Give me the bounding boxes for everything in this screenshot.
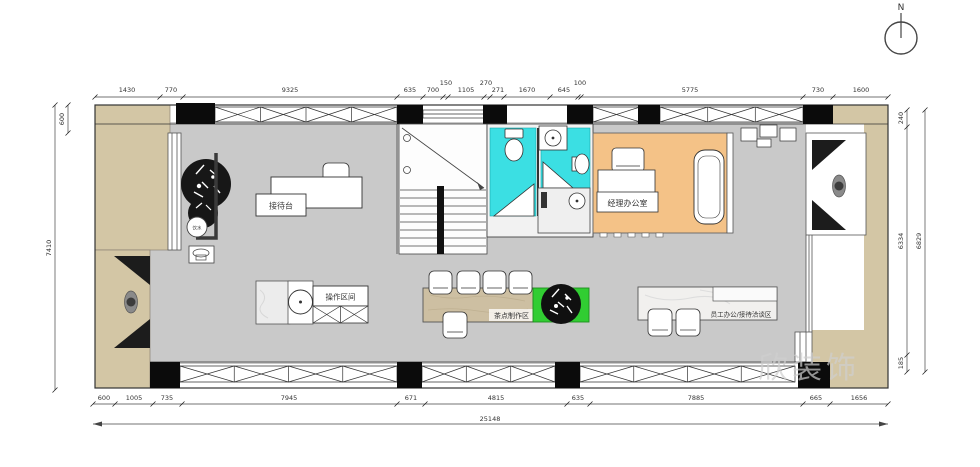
dim-label: 671 [405,394,417,402]
dim-label: 7885 [688,394,705,402]
dim-label: 635 [404,86,416,94]
dim-label: 635 [572,394,584,402]
dim-label: 730 [812,86,824,94]
bar-stool [509,271,532,294]
floor-plan-canvas: 经理办公室 饮水 接待台 操作区间 [0,0,980,463]
top-right-strip [833,105,888,124]
dim-total-label: 25148 [480,415,501,423]
north-label: N [898,3,905,13]
dim-label: 185 [897,357,905,369]
staff-office-label: 员工办公/接待洽谈区 [711,310,772,319]
dim-label: 1670 [519,86,536,94]
dim-label: 665 [810,394,822,402]
dim-label: 4815 [488,394,505,402]
column [803,105,833,124]
dim-label: 150 [440,79,452,87]
dim-label: 735 [161,394,173,402]
stair-handrail [437,186,444,254]
manager-office-label: 经理办公室 [608,198,648,208]
dim-label: 6829 [915,233,923,250]
dim-label: 1600 [853,86,870,94]
dim-label: 1430 [119,86,136,94]
left-window-wall [168,133,181,250]
person-icon [125,291,138,313]
column [150,362,180,388]
small-table [780,128,796,141]
small-chair [757,139,771,147]
staircase [397,124,487,254]
dim-label: 645 [558,86,570,94]
manager-office: 经理办公室 [593,133,733,237]
dim-label: 7410 [45,240,53,257]
bathrooms [487,124,593,237]
office-chair [612,148,644,172]
partition [541,192,547,208]
dim-label: 9325 [282,86,299,94]
water-dispenser-label: 饮水 [193,225,202,232]
toilet-icon [575,154,589,174]
operation-area: 操作区间 [256,281,368,324]
dim-label: 1656 [851,394,868,402]
column [483,105,507,124]
column [638,105,660,124]
dim-label: 1005 [126,394,143,402]
dim-label: 770 [165,86,177,94]
bottom-windows [180,366,795,382]
terrace-top-left [95,105,170,250]
person-icon [833,175,846,197]
dim-label: 240 [897,112,905,124]
dim-label: 5775 [682,86,699,94]
chair [648,309,672,336]
dim-label: 700 [427,86,439,94]
toilet-tank [505,129,523,138]
dim-label: 600 [98,394,110,402]
dim-label: 270 [480,79,492,87]
appliance-icon [189,246,214,263]
column [555,362,580,388]
toilet-icon [505,139,523,161]
column [397,105,423,124]
watermark-text: 欣装饰 [758,351,860,386]
dim-label: 7945 [281,394,298,402]
small-table [760,125,777,137]
dim-label: 100 [574,79,586,87]
reception-desk-label: 接待台 [269,201,293,211]
column [397,362,422,388]
bar-stool [443,312,467,338]
dim-label: 1105 [458,86,475,94]
dim-label: 6334 [897,233,905,250]
column [567,105,593,124]
bar-stool [483,271,506,294]
operation-area-label: 操作区间 [326,292,356,302]
chair [676,309,700,336]
dim-label: 600 [58,113,66,125]
small-table [741,128,757,141]
column [176,103,215,124]
bar-stool [457,271,480,294]
tea-bar-label: 茶点制作区 [494,311,529,320]
dim-label: 271 [492,86,504,94]
bar-stool [429,271,452,294]
counter [256,281,290,324]
